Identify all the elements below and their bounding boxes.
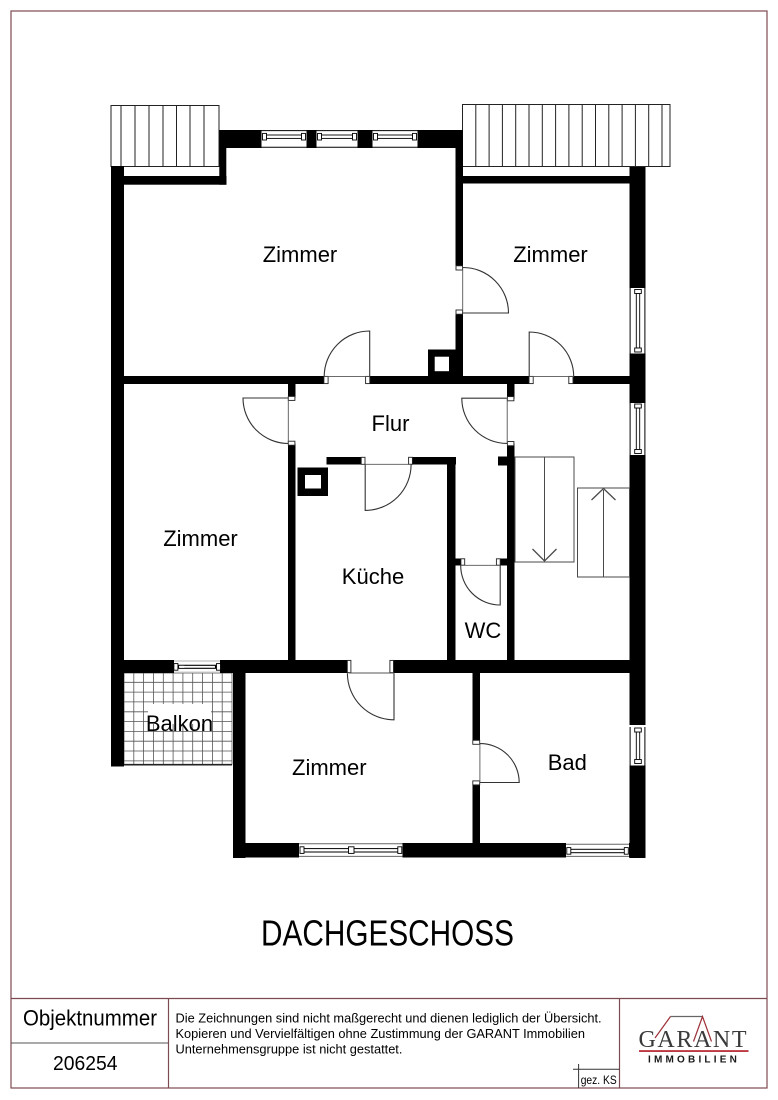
svg-text:Unternehmensgruppe ist nicht g: Unternehmensgruppe ist nicht gestattet.	[176, 1042, 403, 1057]
svg-text:Objektnummer: Objektnummer	[23, 1006, 157, 1031]
svg-text:Zimmer: Zimmer	[513, 242, 588, 267]
svg-text:Küche: Küche	[342, 564, 404, 589]
svg-text:206254: 206254	[53, 1052, 118, 1075]
svg-text:DACHGESCHOSS: DACHGESCHOSS	[261, 913, 514, 954]
svg-text:Zimmer: Zimmer	[163, 526, 238, 551]
svg-text:Flur: Flur	[372, 411, 410, 436]
svg-text:GARANT: GARANT	[639, 1027, 749, 1053]
svg-text:Balkon: Balkon	[146, 711, 213, 736]
svg-text:gez. KS: gez. KS	[581, 1073, 617, 1087]
svg-text:Zimmer: Zimmer	[263, 242, 338, 267]
svg-text:Bad: Bad	[548, 750, 587, 775]
svg-text:Kopieren und Vervielfältigen o: Kopieren und Vervielfältigen ohne Zustim…	[176, 1026, 585, 1041]
svg-text:IMMOBILIEN: IMMOBILIEN	[648, 1055, 740, 1066]
svg-text:WC: WC	[465, 618, 502, 643]
svg-text:Die Zeichnungen sind nicht maß: Die Zeichnungen sind nicht maßgerecht un…	[176, 1011, 602, 1026]
svg-text:Zimmer: Zimmer	[292, 755, 367, 780]
